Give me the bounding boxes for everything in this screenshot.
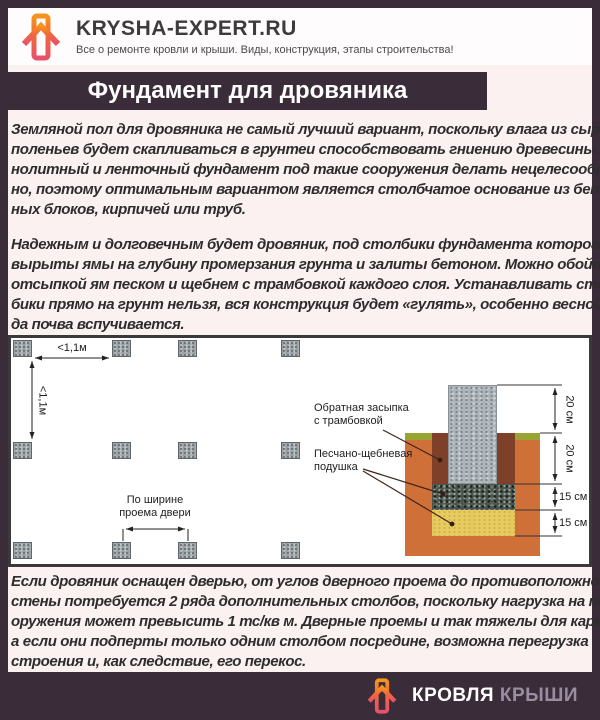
text-line: оружения может превысить 1 тс/кв м. Двер…: [11, 612, 592, 632]
site-footer: КРОВЛЯ КРЫШИ: [0, 672, 600, 720]
page-frame: KRYSHA-EXPERT.RU Все о ремонте кровли и …: [0, 0, 600, 720]
text-line: ных блоков, кирпичей или труб.: [11, 200, 592, 220]
site-header: KRYSHA-EXPERT.RU Все о ремонте кровли и …: [8, 8, 592, 65]
text-line: да почва вспучивается.: [11, 315, 592, 335]
paragraph-3: Если дровяник оснащен дверью, от углов д…: [8, 572, 592, 672]
plan-dim-vertical-label: <1,1м: [36, 381, 49, 421]
brand-word-kryshi: КРЫШИ: [500, 685, 578, 706]
text-line: бики прямо на грунт нельзя, вся конструк…: [11, 295, 592, 315]
text-line: Если дровяник оснащен дверью, от углов д…: [11, 572, 592, 592]
site-tagline: Все о ремонте кровли и крыши. Виды, конс…: [76, 44, 454, 56]
dim-15cm-gravel: 15 см: [559, 491, 593, 504]
door-width-label: По ширине проема двери: [105, 494, 205, 520]
dim-20cm-below-ground: 20 см: [563, 439, 576, 479]
dim-20cm-above-ground: 20 см: [563, 390, 576, 430]
paragraph-1: Земляной пол для дровяника не самый лучш…: [8, 120, 592, 220]
text-line: а если они подперты только одним столбом…: [11, 632, 592, 652]
text-line: но, поэтому оптимальным вариантом являет…: [11, 180, 592, 200]
footer-logo-house-icon: [366, 678, 398, 714]
header-text: KRYSHA-EXPERT.RU Все о ремонте кровли и …: [76, 17, 454, 56]
paragraph-2: Надежным и долговечным будет дровяник, п…: [8, 235, 592, 335]
site-title: KRYSHA-EXPERT.RU: [76, 17, 454, 41]
text-line: Надежным и долговечным будет дровяник, п…: [11, 235, 592, 255]
article-title: Фундамент для дровяника: [88, 77, 408, 105]
text-line: стены потребуется 2 ряда дополнительных …: [11, 592, 592, 612]
brand-word-krovlya: КРОВЛЯ: [412, 685, 494, 706]
text-line: поленьев будет скапливаться в грунтеи сп…: [11, 140, 592, 160]
footer-brand: КРОВЛЯ КРЫШИ: [412, 685, 578, 707]
text-line: Земляной пол для дровяника не самый лучш…: [11, 120, 592, 140]
plan-dim-horizontal-label: <1,1м: [37, 342, 107, 355]
article-title-bar: Фундамент для дровяника: [8, 72, 487, 110]
foundation-diagram: <1,1м <1,1м По ширине проема двери Обрат…: [8, 335, 592, 567]
site-logo-house-icon: [20, 13, 62, 61]
backfill-label: Обратная засыпка с трамбовкой: [314, 402, 409, 428]
text-line: отсыпкой ям песком и щебнем с трамбовкой…: [11, 275, 592, 295]
dim-15cm-sand: 15 см: [559, 517, 593, 530]
text-line: нолитный и ленточный фундамент под такие…: [11, 160, 592, 180]
text-line: строения и, как следствие, его перекос.: [11, 652, 592, 672]
article-card: KRYSHA-EXPERT.RU Все о ремонте кровли и …: [8, 8, 592, 672]
text-line: вырыты ямы на глубину промерзания грунта…: [11, 255, 592, 275]
dimension-lines: [11, 338, 589, 564]
cushion-label: Песчано-щебневая подушка: [314, 448, 412, 474]
